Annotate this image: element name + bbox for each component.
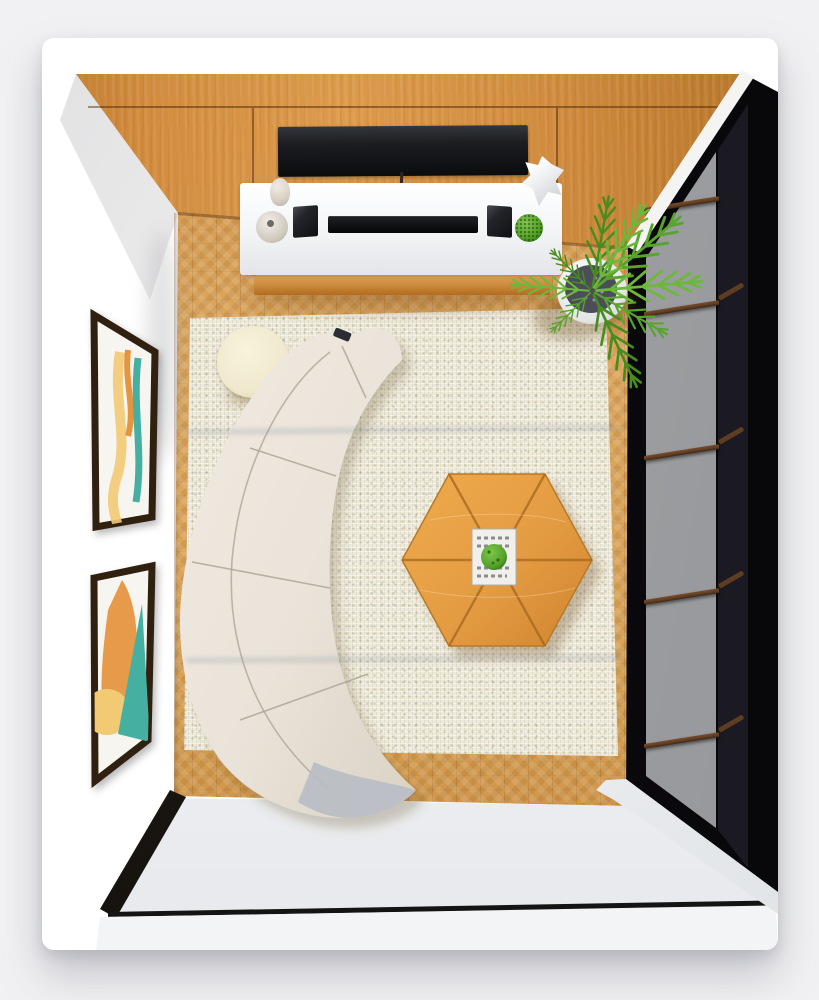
vase-big bbox=[256, 211, 288, 243]
gallery-wall-art bbox=[42, 38, 200, 820]
wall-art-bottom bbox=[84, 566, 152, 781]
render-canvas: { "meta": { "title": "Top-down 3D render… bbox=[0, 0, 819, 1000]
soundbar bbox=[328, 216, 478, 233]
wall-art-top bbox=[94, 315, 155, 527]
room-scene bbox=[42, 38, 778, 950]
tray-plant bbox=[481, 544, 507, 570]
vase-small bbox=[270, 178, 290, 206]
hexagon-coffee-table bbox=[385, 455, 615, 670]
speaker-left bbox=[293, 205, 318, 238]
coffee-table-tray bbox=[472, 529, 516, 585]
palm-plant bbox=[460, 120, 760, 440]
room-viewport bbox=[42, 38, 778, 950]
